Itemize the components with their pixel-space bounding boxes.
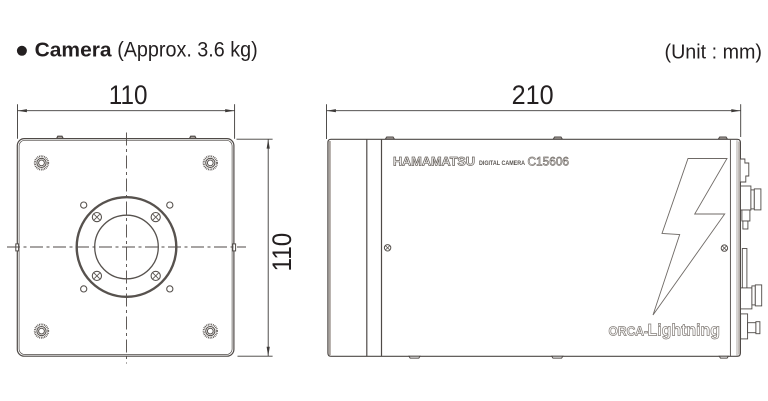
- svg-text:(Unit : mm): (Unit : mm): [665, 40, 763, 63]
- svg-text:110: 110: [109, 80, 148, 110]
- svg-text:DIGITAL CAMERA: DIGITAL CAMERA: [479, 160, 525, 167]
- svg-text:210: 210: [512, 80, 554, 110]
- svg-text:HAMAMATSU: HAMAMATSU: [393, 156, 475, 168]
- svg-text:(Approx. 3.6 kg): (Approx. 3.6 kg): [117, 38, 258, 61]
- svg-text:110: 110: [267, 233, 297, 272]
- svg-text:ORCA-: ORCA-: [609, 324, 649, 339]
- svg-text:Camera: Camera: [35, 38, 113, 61]
- svg-text:C15606: C15606: [528, 156, 570, 168]
- svg-text:Lightning: Lightning: [648, 321, 721, 340]
